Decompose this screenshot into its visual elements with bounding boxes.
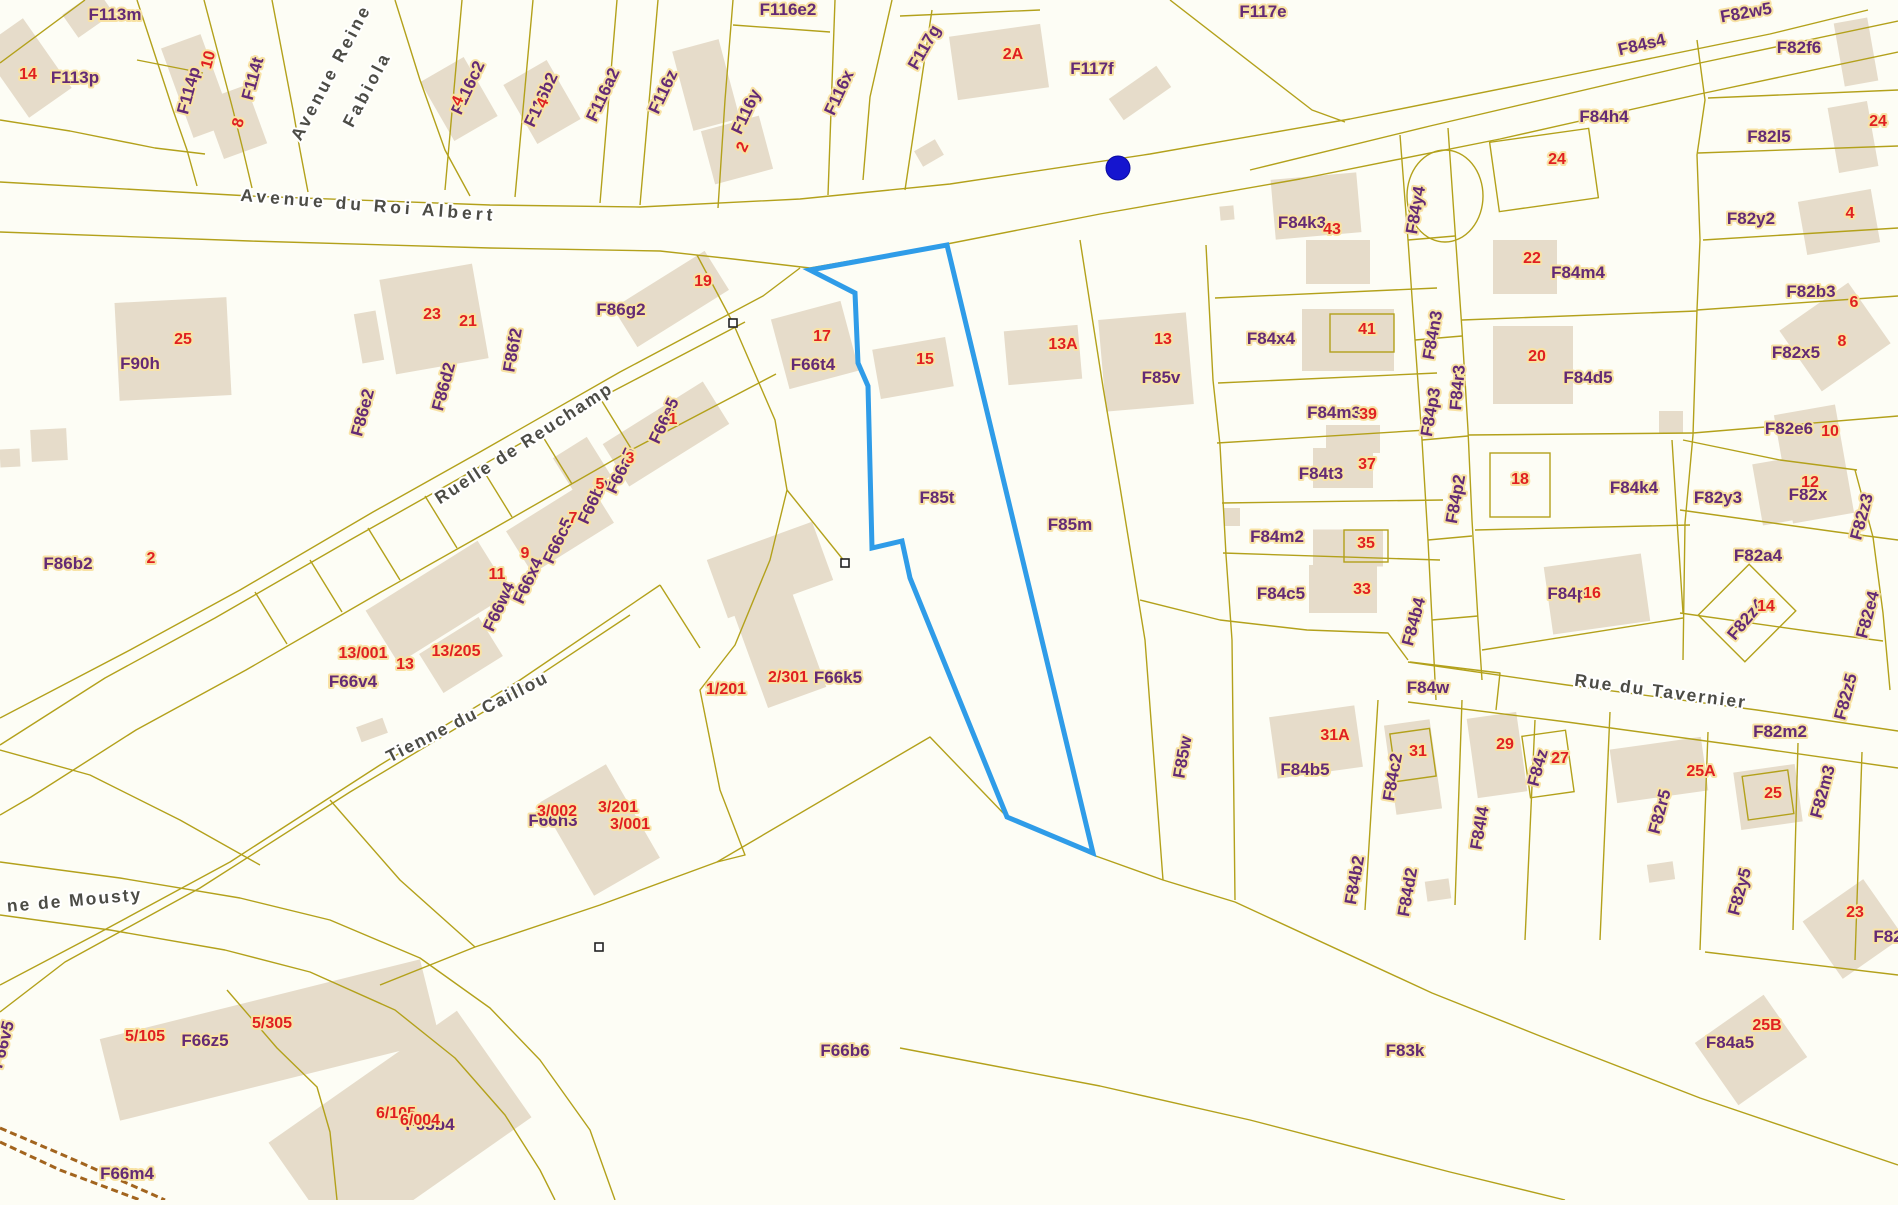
house-number-label: 25A xyxy=(1686,763,1716,780)
parcel-id-label: F66v5 xyxy=(0,1019,18,1070)
parcel-id-label: F82b3 xyxy=(1786,282,1835,301)
parcel-boundary-line xyxy=(1432,616,1478,620)
parcel-id-label: F117f xyxy=(1070,59,1114,78)
parcel-id-label: F85v xyxy=(1142,368,1181,387)
house-number-label: 5 xyxy=(596,476,605,493)
house-number-label: 18 xyxy=(1511,471,1529,488)
street-name-label: Rue du Tavernier xyxy=(1573,670,1748,712)
parcel-id-label: F86b2 xyxy=(43,554,92,573)
house-number-label: 3 xyxy=(626,450,635,467)
parcel-id-label: F90h xyxy=(120,354,160,373)
vertex-marker-icon xyxy=(595,943,603,951)
building-footprint xyxy=(115,297,232,401)
building-footprint xyxy=(872,337,954,399)
house-number-label: 2 xyxy=(147,550,156,567)
building-footprint xyxy=(914,139,944,167)
parcel-boundary-line xyxy=(1428,536,1472,540)
parcel-id-label: F66k5 xyxy=(814,668,862,687)
building-footprint xyxy=(354,310,384,363)
house-number-label: 31 xyxy=(1409,743,1427,760)
parcel-boundary-line xyxy=(1683,40,1705,660)
house-number-label: 29 xyxy=(1496,736,1514,753)
parcel-id-label: F84m4 xyxy=(1551,263,1605,282)
parcel-id-label: F84w xyxy=(1407,678,1450,697)
building-parcel-outline xyxy=(1490,128,1599,211)
parcel-boundary-line xyxy=(0,585,660,985)
street-name-label: ne de Mousty xyxy=(6,884,143,916)
house-number-label: 1/201 xyxy=(706,681,746,698)
building-footprint xyxy=(1004,325,1082,385)
blue-point-marker-icon[interactable] xyxy=(1106,156,1130,180)
parcel-id-label: F82l5 xyxy=(1747,127,1790,146)
parcel-boundary-line xyxy=(0,750,260,865)
parcel-id-label: F82a4 xyxy=(1734,546,1783,565)
parcel-boundary-line xyxy=(733,25,830,32)
parcel-id-label: F66t4 xyxy=(791,355,836,374)
parcel-id-label: F82e4 xyxy=(1852,588,1883,640)
parcel-boundary-line xyxy=(272,0,308,192)
house-number-label: 33 xyxy=(1353,581,1371,598)
parcel-id-label: F116a2 xyxy=(582,65,623,124)
parcel-id-label: F84b5 xyxy=(1280,760,1329,779)
map-canvas[interactable]: Avenue du Roi AlbertAvenue ReineFabiolaR… xyxy=(0,0,1898,1200)
parcel-id-label: F84x4 xyxy=(1247,329,1296,348)
street-name-label: Avenue Reine xyxy=(286,1,375,144)
building-footprint xyxy=(1425,878,1452,901)
house-number-label: 23 xyxy=(1846,904,1864,921)
parcel-id-label: F113m xyxy=(89,5,142,24)
parcel-id-label: F84p2 xyxy=(1442,473,1469,525)
parcel-id-label: F84t3 xyxy=(1299,464,1343,483)
parcel-boundary-line xyxy=(0,120,205,154)
parcel-id-label: F117g xyxy=(904,22,945,73)
house-number-label: 25 xyxy=(174,331,192,348)
house-number-label: 3/001 xyxy=(610,816,650,833)
house-number-label: 10 xyxy=(198,49,219,71)
parcel-boundary-line xyxy=(863,0,892,180)
vertex-marker-icon xyxy=(841,559,849,567)
building-footprint xyxy=(1493,326,1573,404)
house-number-label: 25 xyxy=(1764,785,1782,802)
parcel-id-label: F113p xyxy=(51,68,99,87)
parcel-id-label: F82m3 xyxy=(1807,763,1839,820)
parcel-boundary-line xyxy=(1455,700,1462,905)
parcel-id-label: F85w xyxy=(1170,734,1196,780)
building-footprint xyxy=(949,24,1049,100)
parcel-boundary-line xyxy=(1365,700,1378,910)
parcel-id-label: F82x5 xyxy=(1772,343,1820,362)
parcel-id-label: F85m xyxy=(1048,515,1092,534)
building-footprint xyxy=(1659,411,1683,433)
map-point-marker[interactable] xyxy=(1106,156,1130,180)
house-number-label: 16 xyxy=(1583,585,1601,602)
house-number-label: 31A xyxy=(1320,727,1350,744)
parcel-id-label: F85t xyxy=(920,488,955,507)
parcel-id-label: F83k xyxy=(1386,1041,1425,1060)
parcel-id-label: F66z5 xyxy=(181,1031,228,1050)
parcel-id-label: F116x xyxy=(820,67,857,118)
parcel-boundary-line xyxy=(1462,311,1697,320)
building-footprint xyxy=(1109,66,1171,121)
parcel-id-label: F66b6 xyxy=(820,1041,869,1060)
parcel-id-label: F82y5 xyxy=(1724,866,1755,917)
parcel-id-label: F82y3 xyxy=(1694,488,1742,507)
building-footprint xyxy=(1306,240,1370,284)
building-footprint xyxy=(1828,101,1879,173)
house-number-label: 23 xyxy=(423,306,441,323)
parcel-id-label: F84m3 xyxy=(1307,403,1361,422)
parcel-id-label: F66v4 xyxy=(329,672,378,691)
parcel-id-label: F84y4 xyxy=(1402,184,1429,235)
parcel-id-label: F84k4 xyxy=(1610,478,1659,497)
house-number-label: 6 xyxy=(1850,294,1859,311)
parcel-id-label: F82z5 xyxy=(1830,671,1861,722)
building-footprint xyxy=(1798,189,1880,255)
parcel-boundary-line xyxy=(900,10,1040,16)
parcel-boundary-line xyxy=(900,1048,1565,1200)
house-number-label: 21 xyxy=(459,313,477,330)
house-number-label: 35 xyxy=(1357,535,1375,552)
parcel-boundary-line xyxy=(1206,245,1235,900)
parcel-boundary-line xyxy=(1600,712,1610,940)
house-number-label: 7 xyxy=(569,510,578,527)
house-number-label: 2/301 xyxy=(768,669,808,686)
house-number-label: 27 xyxy=(1551,750,1569,767)
parcel-id-label: F117e xyxy=(1239,2,1286,21)
building-footprint xyxy=(672,39,740,131)
parcel-id-label: F82y2 xyxy=(1727,209,1775,228)
cadastral-map-viewport[interactable]: Avenue du Roi AlbertAvenue ReineFabiolaR… xyxy=(0,0,1898,1200)
house-number-label: 12 xyxy=(1801,474,1819,491)
parcel-boundary-line xyxy=(1217,430,1427,443)
parcel-id-label: F82w5 xyxy=(1719,0,1773,26)
parcel-id-label: F84d5 xyxy=(1563,368,1612,387)
house-number-label: 13A xyxy=(1048,336,1078,353)
house-number-label: 22 xyxy=(1523,250,1541,267)
house-number-label: 17 xyxy=(813,328,831,345)
parcel-id-label: F84p3 xyxy=(1417,386,1444,438)
building-footprint xyxy=(1467,712,1528,798)
building-footprint xyxy=(771,301,859,389)
parcel-id-label: F82m2 xyxy=(1753,722,1807,741)
parcel-id-label: F82e6 xyxy=(1765,419,1813,438)
house-number-label: 15 xyxy=(916,351,934,368)
house-number-label: 11 xyxy=(489,566,506,583)
parcel-boundary-line xyxy=(1708,90,1898,98)
parcel-id-label: F84c5 xyxy=(1257,584,1305,603)
house-number-label: 13/205 xyxy=(432,643,481,660)
building-footprint xyxy=(30,428,68,462)
house-number-label: 39 xyxy=(1359,406,1377,423)
house-number-label: 13 xyxy=(1154,331,1172,348)
parcel-id-label: F84l4 xyxy=(1466,804,1492,851)
building-footprint xyxy=(356,718,388,743)
parcel-boundary-line xyxy=(368,528,400,580)
house-number-label: 5/105 xyxy=(125,1028,165,1045)
house-number-label: 10 xyxy=(1821,423,1839,440)
parcel-boundary-line xyxy=(1215,288,1437,298)
parcel-id-label: F84a5 xyxy=(1706,1033,1754,1052)
parcel-boundary-line xyxy=(255,592,287,644)
parcel-id-label: F116e2 xyxy=(760,0,817,19)
street-name-label: Tienne du Caillou xyxy=(383,667,552,766)
parcel-id-label: F82f6 xyxy=(1777,38,1821,57)
building-footprint xyxy=(1098,312,1194,411)
parcel-id-label: F84z xyxy=(1524,747,1552,788)
vertex-marker-icon xyxy=(729,319,737,327)
house-number-label: 13 xyxy=(396,656,414,673)
parcel-boundary-line xyxy=(660,585,700,648)
parcel-id-label: F114t xyxy=(238,55,268,102)
parcel-boundary-line xyxy=(1672,440,1683,613)
house-number-label: 8 xyxy=(1838,333,1847,350)
parcel-boundary-line xyxy=(1475,525,1690,530)
street-name-label: Avenue du Roi Albert xyxy=(240,185,497,225)
parcel-id-label: F84k3 xyxy=(1278,213,1326,232)
parcel-id-label: F84s4 xyxy=(1616,30,1668,59)
parcel-id-label: F86f2 xyxy=(499,327,525,374)
parcel-boundary-line xyxy=(310,560,342,612)
house-number-label: 9 xyxy=(521,545,530,562)
house-number-label: 19 xyxy=(694,273,712,290)
house-number-label: 13/001 xyxy=(339,645,388,662)
house-number-label: 41 xyxy=(1358,321,1376,338)
parcel-boundary-line xyxy=(0,52,1898,268)
house-number-label: 1 xyxy=(669,411,678,428)
parcel-id-label: F86g2 xyxy=(596,300,645,319)
house-number-label: 4 xyxy=(1846,205,1855,222)
parcel-boundary-line xyxy=(1468,433,1693,435)
parcel-id-label: F66m4 xyxy=(100,1164,154,1183)
house-number-label: 43 xyxy=(1323,221,1341,238)
parcel-boundary-line xyxy=(1218,373,1437,383)
building-footprint xyxy=(1224,508,1240,526)
house-number-label: 24 xyxy=(1869,113,1887,130)
house-number-label: 20 xyxy=(1528,348,1546,365)
building-footprint xyxy=(613,251,729,347)
parcel-id-label: F84r3 xyxy=(1446,364,1469,411)
house-number-label: 3/002 xyxy=(537,803,577,820)
parcel-id-label: F86e2 xyxy=(347,387,378,438)
house-number-label: 6/004 xyxy=(400,1112,440,1129)
building-footprint xyxy=(1834,18,1879,87)
building-footprint xyxy=(1219,205,1234,220)
parcel-id-label: F84n3 xyxy=(1419,309,1446,361)
parcel-id-label: F84d2 xyxy=(1394,866,1421,918)
building-footprint xyxy=(1647,861,1675,882)
parcel-boundary-line xyxy=(1222,500,1443,503)
parcel-id-label: F84m2 xyxy=(1250,527,1304,546)
house-number-label: 24 xyxy=(1548,151,1566,168)
house-number-label: 14 xyxy=(19,66,37,83)
parcel-id-label: F82 xyxy=(1873,927,1898,946)
house-number-label: 25B xyxy=(1752,1017,1781,1034)
house-number-label: 14 xyxy=(1757,598,1775,615)
building-footprint xyxy=(1493,240,1557,294)
parcel-id-label: F84b4 xyxy=(1398,595,1429,648)
house-number-label: 5/305 xyxy=(252,1015,292,1032)
parcel-id-label: F66x4 xyxy=(509,554,547,606)
building-footprint xyxy=(1302,309,1394,371)
building-footprint xyxy=(0,448,20,467)
parcel-id-label: F84h4 xyxy=(1579,107,1629,126)
house-number-label: 3/201 xyxy=(598,799,638,816)
parcel-id-label: F84b2 xyxy=(1341,854,1368,906)
parcel-id-label: F86d2 xyxy=(428,360,459,412)
house-number-label: 2A xyxy=(1003,46,1024,63)
parcel-boundary-line xyxy=(330,800,475,947)
house-number-label: 37 xyxy=(1358,456,1376,473)
